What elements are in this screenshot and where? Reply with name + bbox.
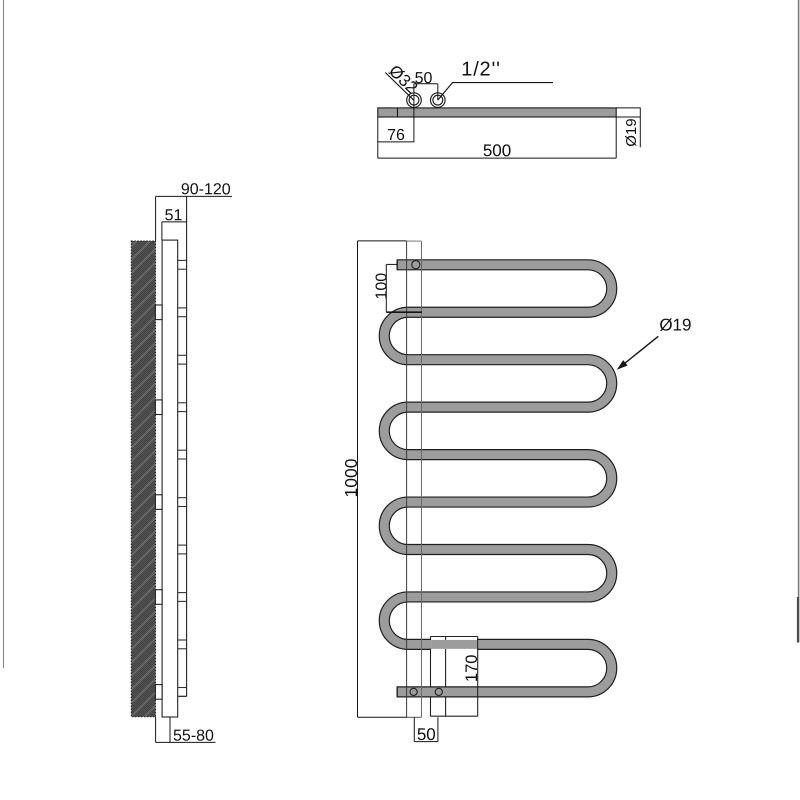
svg-text:100: 100 <box>373 273 390 300</box>
svg-text:500: 500 <box>483 141 511 160</box>
svg-text:51: 51 <box>165 207 183 224</box>
svg-text:90-120: 90-120 <box>181 181 231 198</box>
svg-text:55-80: 55-80 <box>173 728 214 745</box>
svg-text:Ø19: Ø19 <box>659 315 691 334</box>
svg-text:50: 50 <box>415 70 433 87</box>
svg-text:50: 50 <box>417 725 436 744</box>
svg-text:1000: 1000 <box>341 458 361 497</box>
svg-text:1/2'': 1/2'' <box>461 58 500 80</box>
svg-text:76: 76 <box>387 127 405 144</box>
svg-text:Ø19: Ø19 <box>623 118 640 146</box>
svg-text:170: 170 <box>463 655 481 683</box>
